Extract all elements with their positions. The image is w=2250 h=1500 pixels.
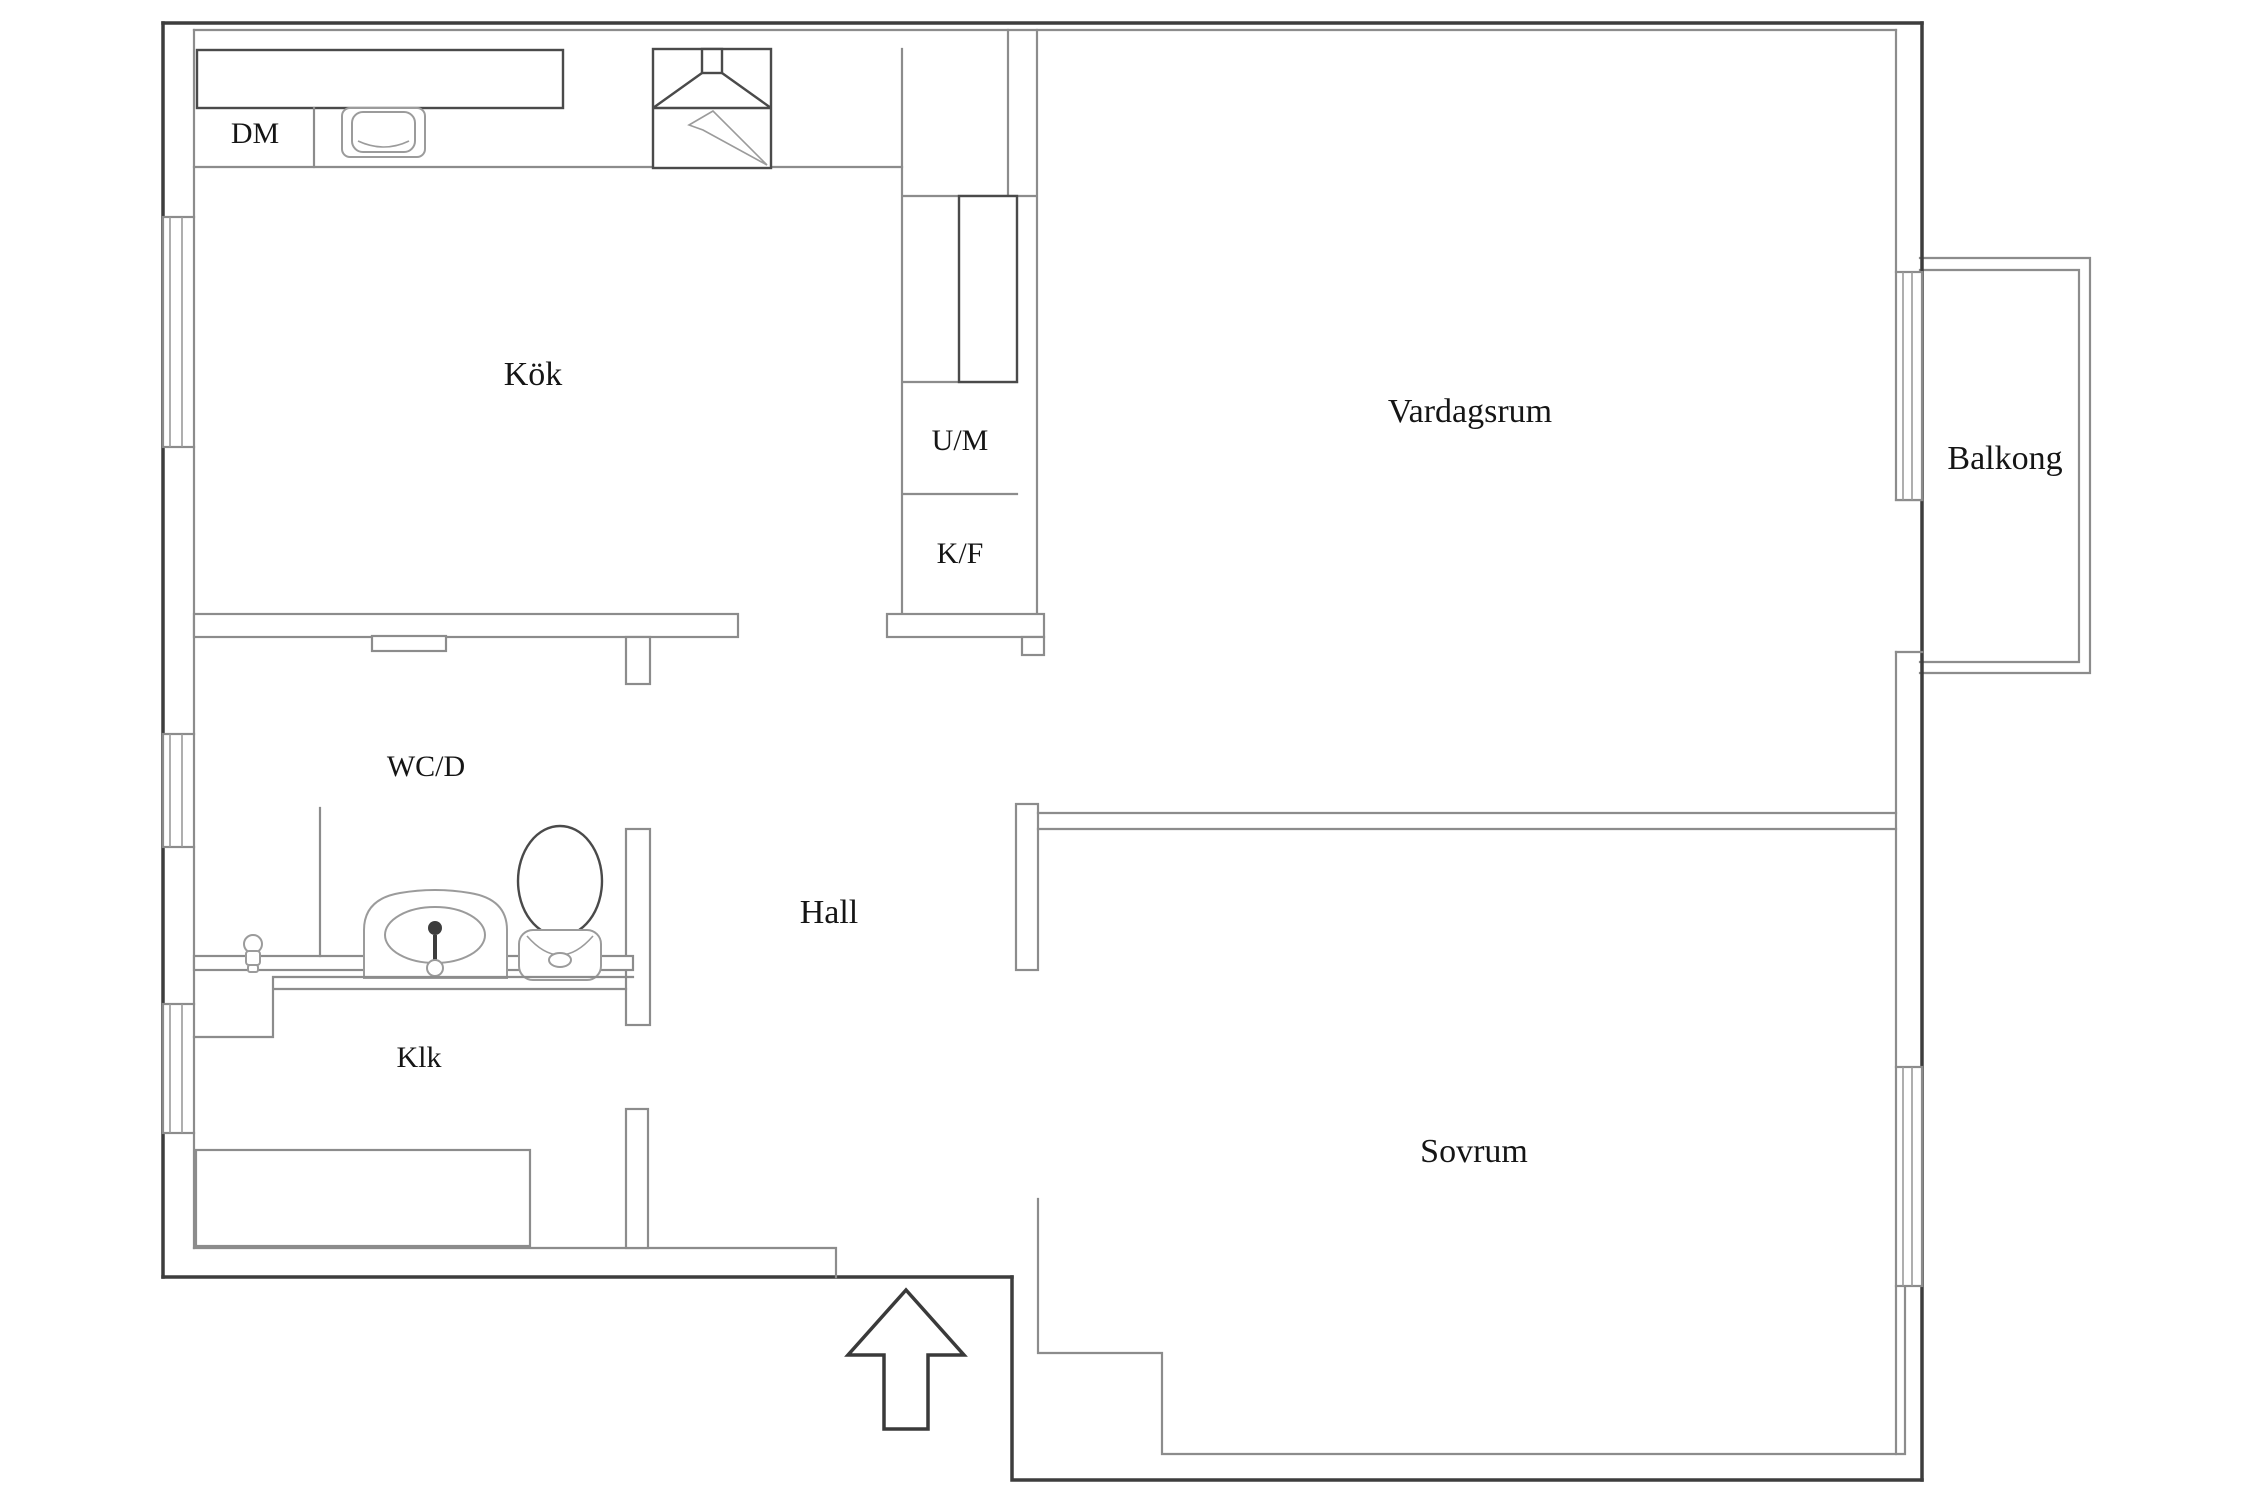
label-washing-machine: U/M (932, 424, 989, 457)
kitchen-bathroom-wall (194, 614, 738, 637)
wall-niche (372, 636, 446, 651)
washbasin-icon (364, 890, 507, 978)
wall-stairwell-outer (1012, 1277, 1922, 1480)
window-icon-bedroom (1896, 1067, 1922, 1286)
closet-room (194, 977, 648, 1248)
bedroom-door-jamb (1016, 804, 1038, 970)
balcony-door-opening (1896, 500, 1922, 652)
column-bottom-wall (887, 614, 1044, 637)
stove-icon (653, 49, 771, 168)
floor-plan-svg: DM Kök U/M K/F Vardagsrum Balkong WC/D H… (0, 0, 2250, 1500)
label-dishwasher: DM (231, 117, 279, 150)
tall-cabinet (959, 196, 1017, 382)
wall-stairwell-inner (1038, 1199, 1905, 1454)
closet-north-wall (194, 977, 633, 1037)
entrance-arrow-icon (848, 1290, 964, 1429)
basin-faucet-dot (428, 921, 442, 935)
bedroom-north-wall (1038, 813, 1896, 829)
wall-bottom-left-inner (194, 1248, 836, 1277)
window-icon-closet (163, 1004, 194, 1133)
kitchen-room (194, 49, 902, 168)
bathroom-door-jamb-bottom (626, 829, 650, 1025)
kitchen-counter (197, 50, 563, 108)
label-fridge-freezer: K/F (937, 537, 984, 570)
label-hall: Hall (800, 894, 859, 931)
wardrobe (196, 1150, 530, 1246)
label-living-room: Vardagsrum (1388, 393, 1552, 430)
kitchen-south-wall (194, 614, 738, 651)
floor-plan-page: DM Kök U/M K/F Vardagsrum Balkong WC/D H… (0, 0, 2250, 1500)
bathroom-room (194, 637, 650, 1025)
bedroom-walls (1016, 804, 1896, 970)
column-wall-foot (1022, 637, 1044, 655)
label-balcony: Balkong (1947, 440, 2062, 477)
bathroom-door-jamb-top (626, 637, 650, 684)
label-bedroom: Sovrum (1420, 1133, 1528, 1170)
toilet-icon (518, 826, 602, 980)
window-icon-living-room (1896, 272, 1922, 500)
window-icon-kitchen (163, 217, 194, 447)
label-kitchen: Kök (504, 356, 563, 393)
label-bathroom: WC/D (387, 750, 465, 783)
window-icon-bathroom (163, 734, 194, 847)
label-closet: Klk (397, 1041, 442, 1074)
sink-icon (342, 108, 425, 157)
closet-door-jamb (626, 1109, 648, 1248)
